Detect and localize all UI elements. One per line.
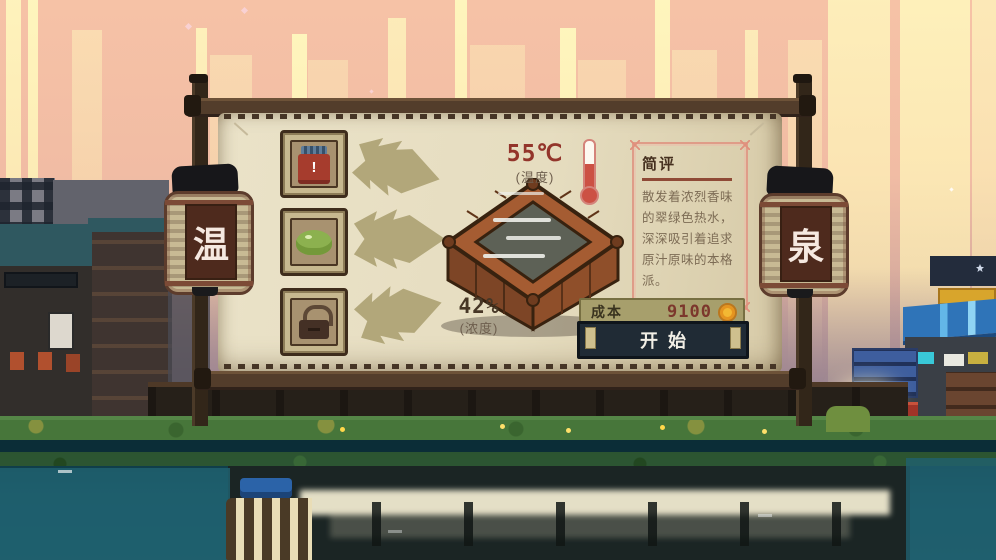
- water-glints: [58, 470, 72, 473]
- lantern-body: 泉: [759, 193, 849, 297]
- jar-icon: !: [298, 146, 330, 182]
- slot-frame: [290, 298, 338, 346]
- temperature-caption: (温度): [492, 167, 578, 186]
- shore-lights: [500, 424, 505, 429]
- arrow-icon: [352, 206, 448, 272]
- temperature-readout: 55℃ (温度): [492, 141, 578, 186]
- bottom-beam: [196, 371, 804, 390]
- banner-stitch-bottom: [224, 364, 776, 369]
- lantern-left-character: 温: [193, 216, 229, 268]
- concentration-value: 42%: [436, 294, 522, 318]
- cost-label: 成本: [591, 302, 623, 322]
- white-sign: [48, 312, 74, 350]
- herb-icon: [296, 230, 332, 255]
- lantern-left: 温: [162, 165, 250, 305]
- bottom-beam-cap-left: [194, 368, 211, 389]
- bush: [826, 406, 870, 432]
- lantern-body: 温: [164, 191, 254, 295]
- water-teal-right: [906, 458, 996, 560]
- lock-body: [299, 320, 329, 339]
- jar-body: !: [298, 154, 330, 184]
- left-post-cap: [189, 74, 208, 83]
- ornament-icon: [630, 140, 640, 150]
- slot-frame: [290, 218, 338, 266]
- review-panel: 简评 散发着浓烈香味的翠绿色热水，深深吸引着追求原汁原味的本格派。: [632, 142, 748, 310]
- review-title-underline: [642, 178, 732, 181]
- button-end-bar: [585, 327, 596, 349]
- top-beam-cap-left: [184, 95, 201, 116]
- right-post-cap: [793, 74, 812, 83]
- start-button[interactable]: 开始: [577, 321, 749, 359]
- navy-flag: [930, 256, 996, 286]
- reflected-sign-cloth: [226, 498, 312, 560]
- reflected-columns: [280, 502, 880, 546]
- lantern-strap: [165, 281, 253, 286]
- slot-frame: !: [290, 140, 338, 188]
- reflected-grass: [0, 452, 996, 466]
- lantern-foot: [192, 287, 218, 296]
- lantern-panel: 温: [185, 204, 237, 280]
- shop-signboard: [4, 272, 78, 288]
- ingredient-slot-2[interactable]: [280, 208, 348, 276]
- temperature-value: 55℃: [492, 141, 578, 167]
- building-left-dark: [0, 266, 92, 426]
- review-title: 简评: [642, 153, 738, 174]
- top-beam-cap-right: [799, 95, 816, 116]
- lantern-right-character: 泉: [788, 218, 824, 270]
- banner-stitch-top: [224, 114, 776, 119]
- building-left-grey: [0, 178, 55, 230]
- game-screen: !: [0, 0, 996, 560]
- ingredient-slot-1[interactable]: !: [280, 130, 348, 198]
- water-teal-left: [0, 468, 230, 560]
- coin-icon: [718, 303, 737, 322]
- start-button-label: 开始: [630, 327, 696, 353]
- thermometer-icon: [583, 139, 596, 193]
- lantern-panel: 泉: [780, 206, 832, 282]
- cost-amount: 9100: [667, 302, 712, 322]
- ornament-icon: [740, 140, 750, 150]
- bottom-beam-cap-right: [789, 368, 806, 389]
- lit-windows: [10, 352, 24, 370]
- concentration-caption: (浓度): [436, 318, 522, 337]
- concentration-readout: 42% (浓度): [436, 294, 522, 337]
- button-end-bar: [730, 327, 741, 349]
- jar-alert-badge: !: [312, 160, 317, 175]
- lantern-foot: [787, 289, 813, 298]
- reflected-blue-boat: [240, 478, 292, 498]
- ingredient-slot-3[interactable]: [280, 288, 348, 356]
- thermometer-bulb: [580, 186, 599, 205]
- lantern-strap: [760, 283, 848, 288]
- lock-icon: [299, 305, 329, 339]
- review-body: 散发着浓烈香味的翠绿色热水，深深吸引着追求原汁原味的本格派。: [642, 187, 738, 292]
- teal-roof: [0, 224, 96, 272]
- lantern-right: 泉: [757, 167, 845, 307]
